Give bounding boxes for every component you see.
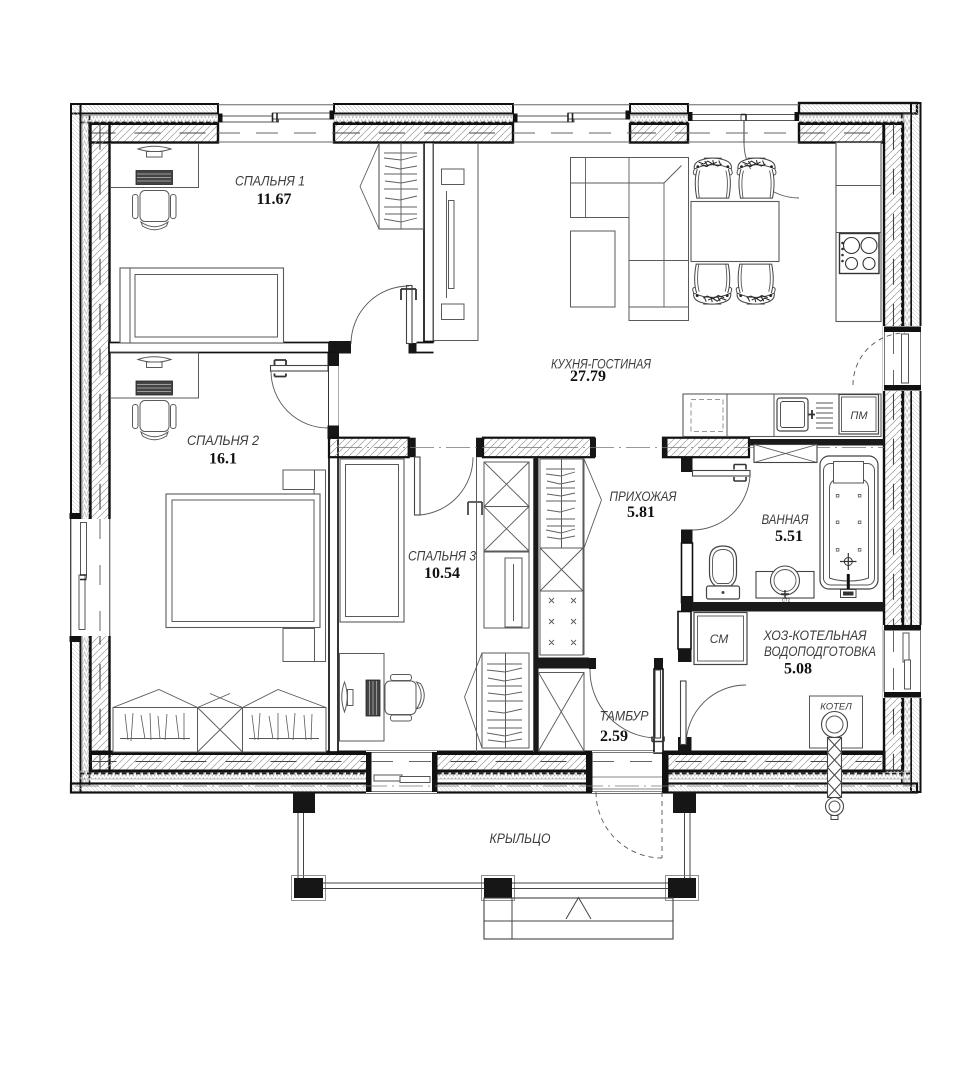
svg-text:ХОЗ-КОТЕЛЬНАЯ: ХОЗ-КОТЕЛЬНАЯ xyxy=(763,628,868,643)
svg-text:5.51: 5.51 xyxy=(775,528,803,545)
svg-text:СПАЛЬНЯ 2: СПАЛЬНЯ 2 xyxy=(187,433,259,448)
svg-text:2.59: 2.59 xyxy=(600,728,628,745)
svg-text:16.1: 16.1 xyxy=(209,451,237,468)
svg-text:10.54: 10.54 xyxy=(424,565,460,582)
svg-text:5.81: 5.81 xyxy=(627,504,655,521)
svg-text:ПМ: ПМ xyxy=(850,410,868,422)
svg-text:СМ: СМ xyxy=(710,632,729,646)
svg-text:ВАННАЯ: ВАННАЯ xyxy=(762,512,810,527)
svg-text:СТ2: СТ2 xyxy=(782,598,791,603)
svg-text:КОТЕЛ: КОТЕЛ xyxy=(820,702,852,713)
svg-text:ТАМБУР: ТАМБУР xyxy=(600,709,649,724)
svg-text:СПАЛЬНЯ 1: СПАЛЬНЯ 1 xyxy=(235,174,305,189)
svg-text:СПАЛЬНЯ 3: СПАЛЬНЯ 3 xyxy=(408,549,476,564)
svg-text:5.08: 5.08 xyxy=(784,661,812,678)
svg-text:ПРИХОЖАЯ: ПРИХОЖАЯ xyxy=(610,489,678,504)
svg-text:11.67: 11.67 xyxy=(256,191,291,208)
svg-text:КРЫЛЬЦО: КРЫЛЬЦО xyxy=(490,831,551,846)
svg-text:ВОДОПОДГОТОВКА: ВОДОПОДГОТОВКА xyxy=(764,644,876,659)
svg-text:27.79: 27.79 xyxy=(570,368,606,385)
